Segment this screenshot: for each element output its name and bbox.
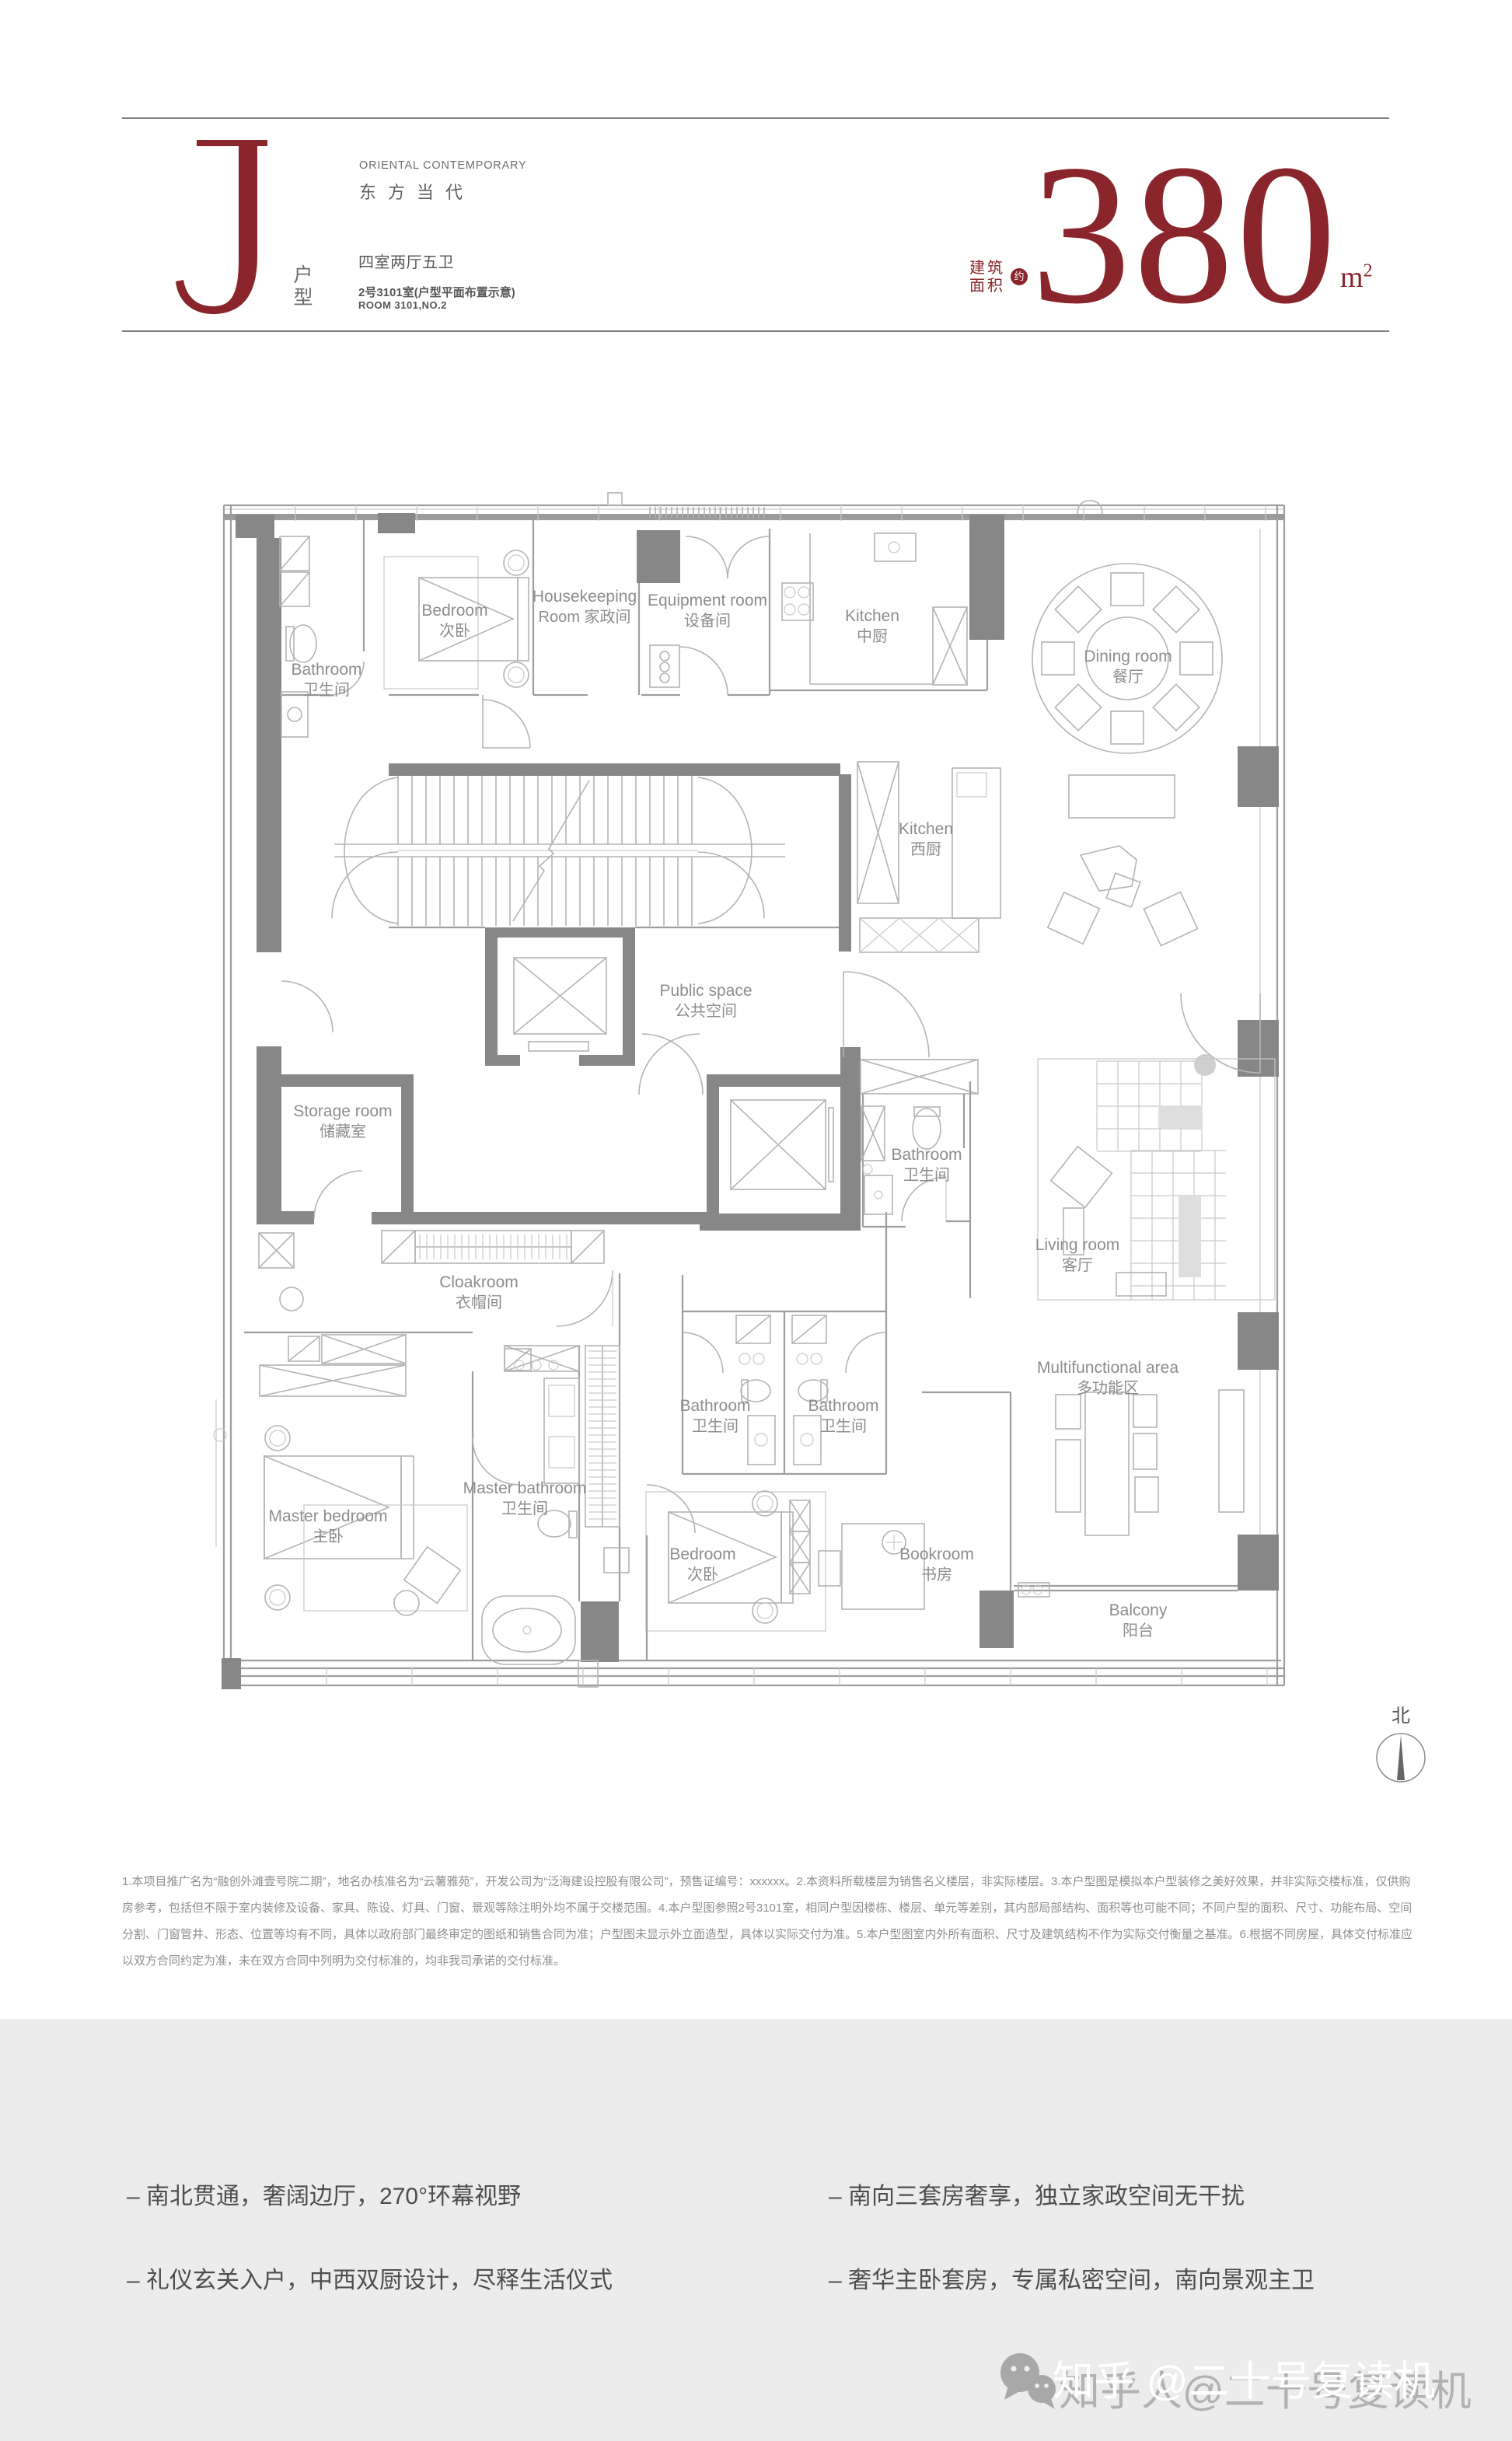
svg-text:储藏室: 储藏室 <box>320 1123 366 1140</box>
svg-text:衣帽间: 衣帽间 <box>456 1294 502 1311</box>
svg-text:西厨: 西厨 <box>910 841 941 858</box>
svg-text:知乎 @二十号复读机: 知乎 @二十号复读机 <box>1053 2359 1436 2404</box>
svg-text:Room 家政间: Room 家政间 <box>539 608 631 626</box>
svg-text:Public space: Public space <box>659 982 752 1000</box>
svg-text:Bookroom: Bookroom <box>899 1545 974 1563</box>
svg-text:卫生间: 卫生间 <box>303 681 350 699</box>
svg-text:主卧: 主卧 <box>313 1528 344 1545</box>
svg-text:Bathroom: Bathroom <box>291 661 361 679</box>
svg-text:设备间: 设备间 <box>684 612 731 630</box>
svg-text:Bathroom: Bathroom <box>808 1397 878 1415</box>
svg-text:卫生间: 卫生间 <box>820 1417 867 1435</box>
svg-text:北: 北 <box>1392 1706 1410 1727</box>
svg-text:书房: 书房 <box>921 1566 952 1584</box>
svg-text:卫生间: 卫生间 <box>501 1500 548 1517</box>
svg-text:Equipment room: Equipment room <box>648 592 767 609</box>
svg-text:Living room: Living room <box>1035 1236 1120 1254</box>
svg-text:餐厅: 餐厅 <box>1112 668 1144 686</box>
svg-text:Bedroom: Bedroom <box>669 1545 735 1563</box>
svg-text:卫生间: 卫生间 <box>903 1166 950 1184</box>
svg-text:Dining room: Dining room <box>1084 648 1172 665</box>
svg-text:Bathroom: Bathroom <box>891 1146 962 1164</box>
svg-text:多功能区: 多功能区 <box>1077 1379 1139 1397</box>
svg-text:Bedroom: Bedroom <box>421 602 487 620</box>
svg-text:Bathroom: Bathroom <box>679 1397 750 1415</box>
svg-text:阳台: 阳台 <box>1123 1622 1154 1640</box>
svg-text:Master bathroom: Master bathroom <box>463 1479 587 1497</box>
svg-text:Balcony: Balcony <box>1109 1601 1168 1619</box>
svg-text:Master bedroom: Master bedroom <box>269 1507 388 1525</box>
svg-text:客厅: 客厅 <box>1062 1256 1093 1274</box>
svg-text:Multifunctional area: Multifunctional area <box>1037 1359 1179 1377</box>
svg-text:Storage room: Storage room <box>293 1102 392 1120</box>
svg-text:Kitchen: Kitchen <box>845 607 899 625</box>
svg-text:次卧: 次卧 <box>439 622 470 640</box>
svg-text:中厨: 中厨 <box>857 627 888 645</box>
svg-text:Cloakroom: Cloakroom <box>439 1273 519 1291</box>
svg-text:公共空间: 公共空间 <box>675 1002 737 1020</box>
svg-text:Housekeeping: Housekeeping <box>533 588 637 606</box>
svg-text:Kitchen: Kitchen <box>899 820 953 838</box>
svg-text:卫生间: 卫生间 <box>692 1417 739 1435</box>
svg-text:次卧: 次卧 <box>687 1566 718 1584</box>
